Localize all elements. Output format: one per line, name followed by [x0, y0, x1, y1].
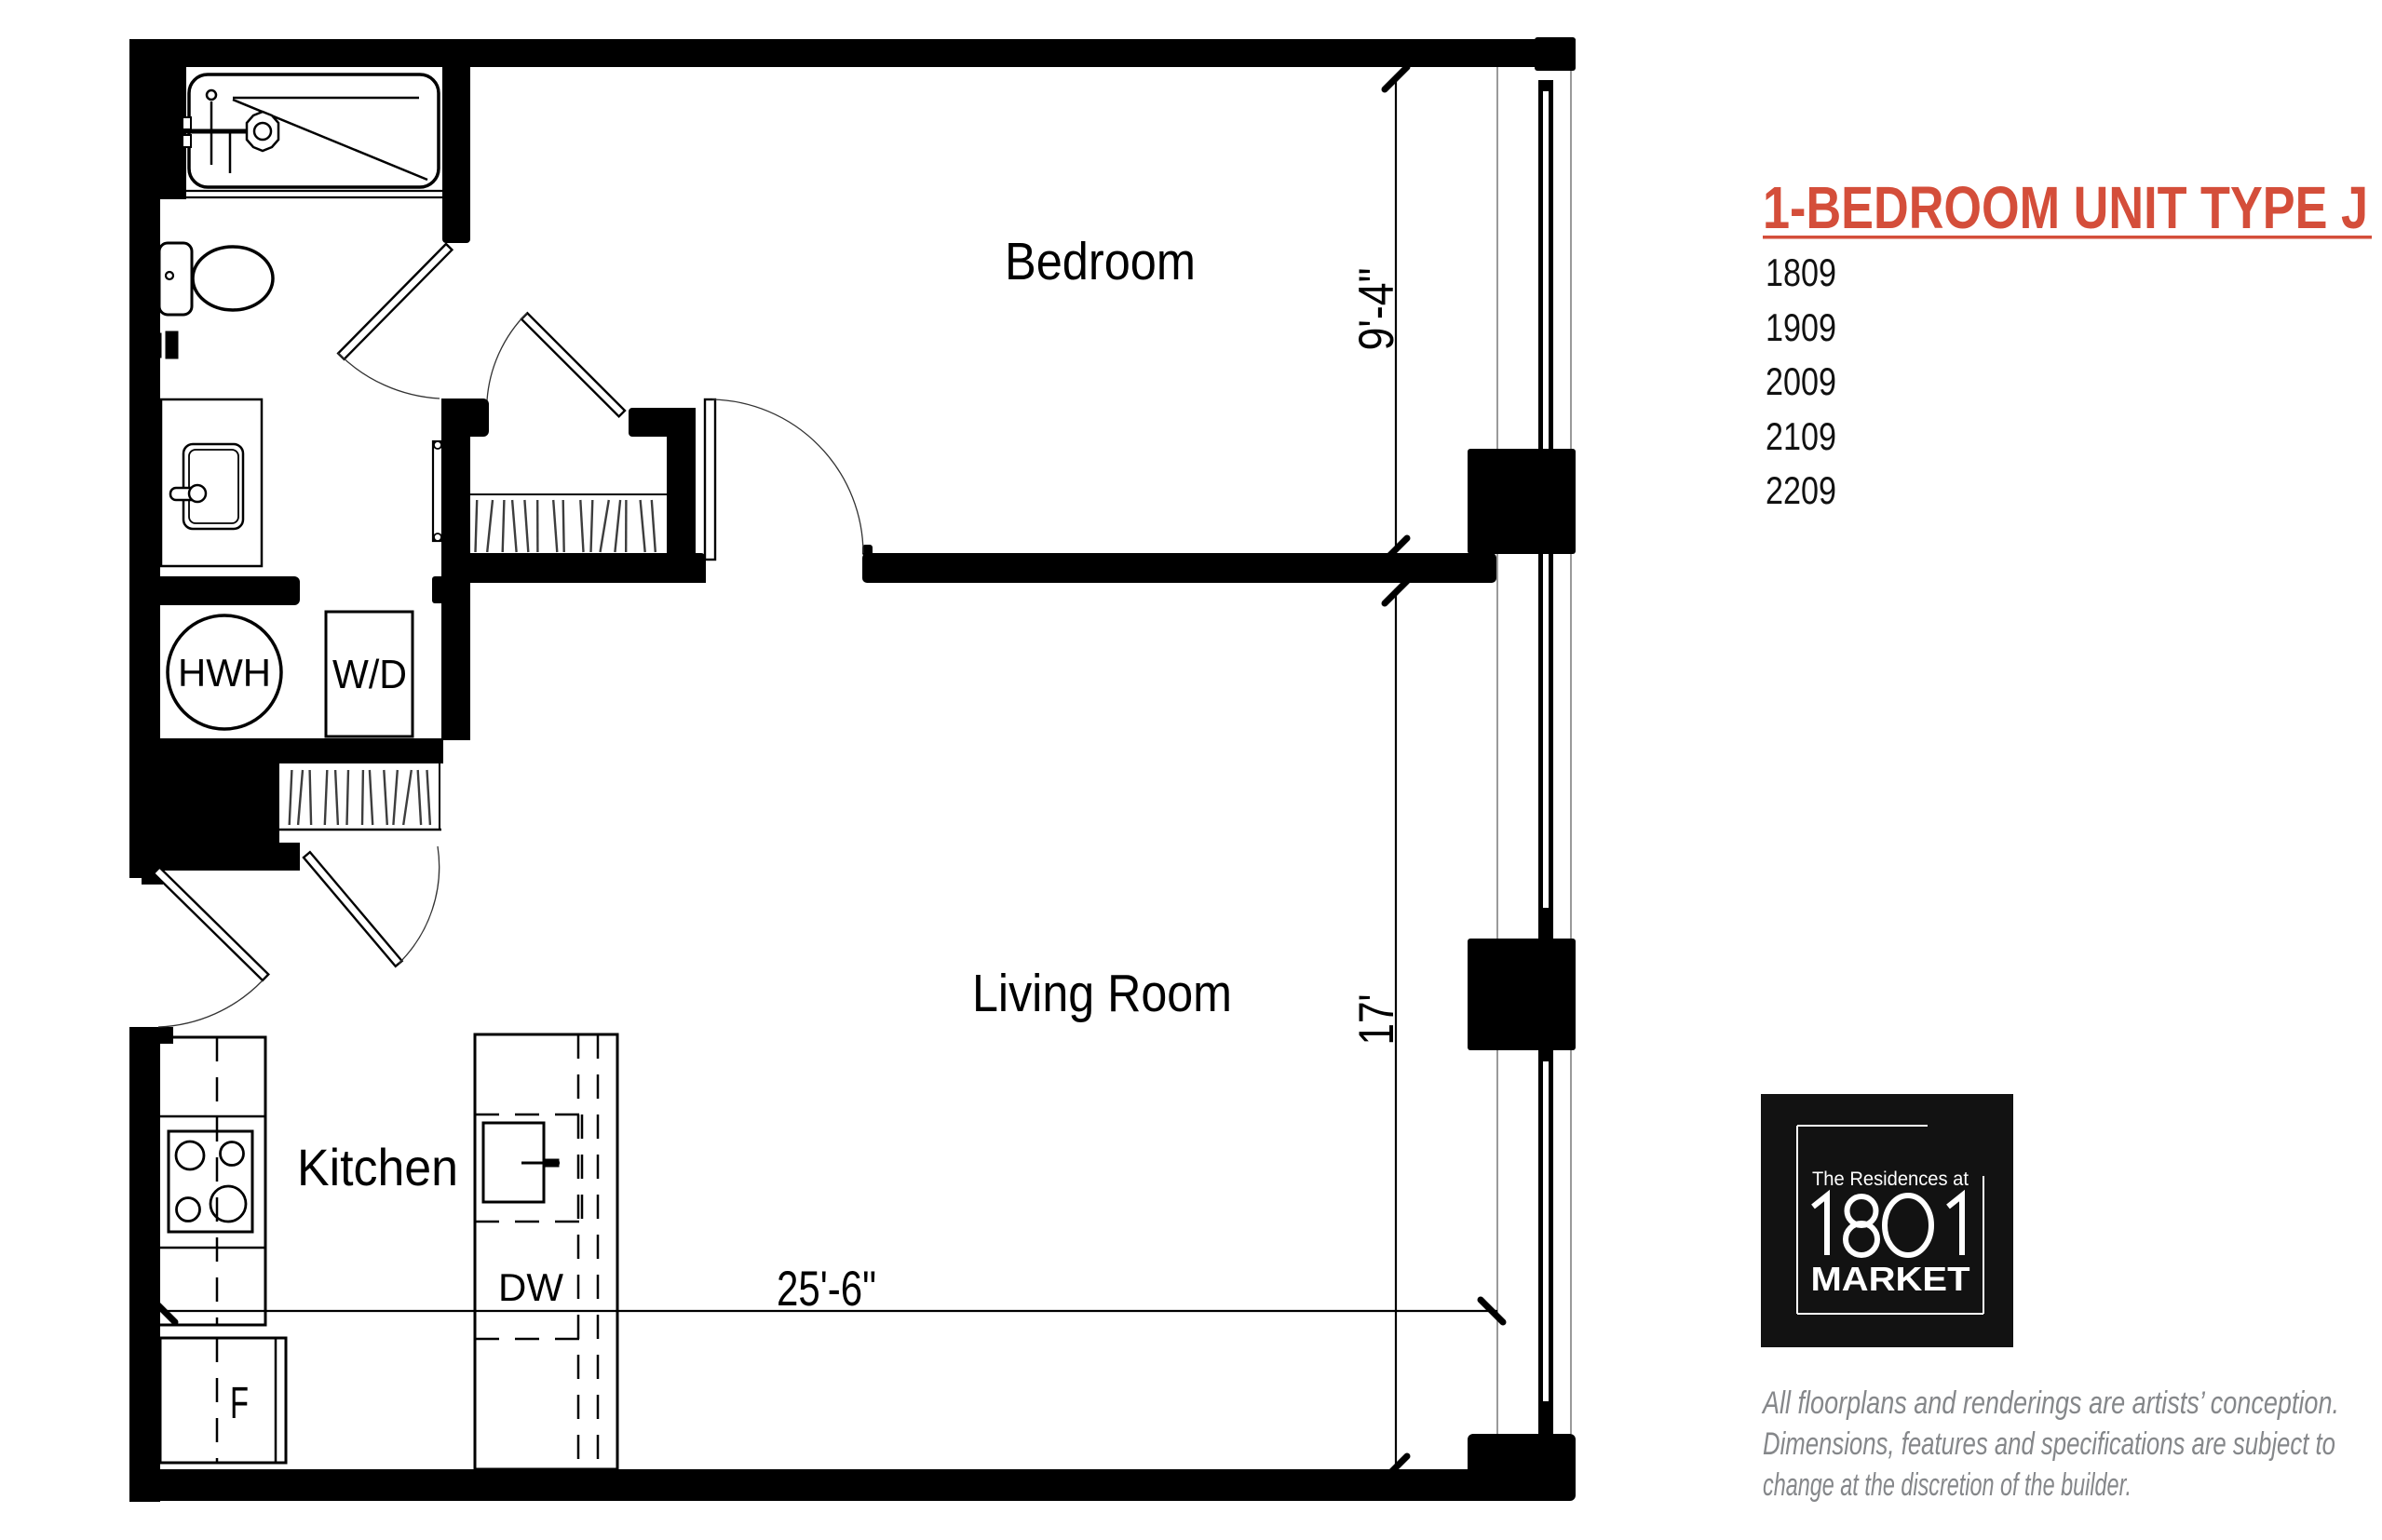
svg-text:Kitchen: Kitchen — [297, 1138, 458, 1196]
svg-text:17': 17' — [1349, 994, 1404, 1046]
svg-text:2009: 2009 — [1766, 359, 1836, 403]
svg-text:2109: 2109 — [1766, 414, 1836, 458]
svg-text:Dimensions, features and speci: Dimensions, features and specifications … — [1763, 1426, 2335, 1462]
svg-text:change at the discretion of th: change at the discretion of the builder. — [1763, 1467, 2132, 1503]
svg-text:Living Room: Living Room — [972, 964, 1232, 1023]
svg-text:DW: DW — [498, 1265, 563, 1309]
svg-text:HWH: HWH — [178, 651, 271, 695]
svg-text:9'-4": 9'-4" — [1349, 268, 1404, 351]
svg-text:MARKET: MARKET — [1811, 1260, 1970, 1298]
svg-text:All floorplans and renderings: All floorplans and renderings are artist… — [1761, 1385, 2339, 1421]
svg-text:1809: 1809 — [1766, 250, 1836, 294]
svg-text:The Residences at: The Residences at — [1812, 1169, 1969, 1190]
svg-text:1-BEDROOM UNIT TYPE J: 1-BEDROOM UNIT TYPE J — [1763, 174, 2368, 241]
svg-text:W/D: W/D — [332, 652, 407, 697]
svg-text:F: F — [230, 1379, 249, 1428]
svg-text:1909: 1909 — [1766, 305, 1836, 349]
svg-text:Bedroom: Bedroom — [1005, 232, 1196, 291]
svg-text:25'-6": 25'-6" — [777, 1262, 876, 1317]
svg-text:2209: 2209 — [1766, 468, 1836, 512]
